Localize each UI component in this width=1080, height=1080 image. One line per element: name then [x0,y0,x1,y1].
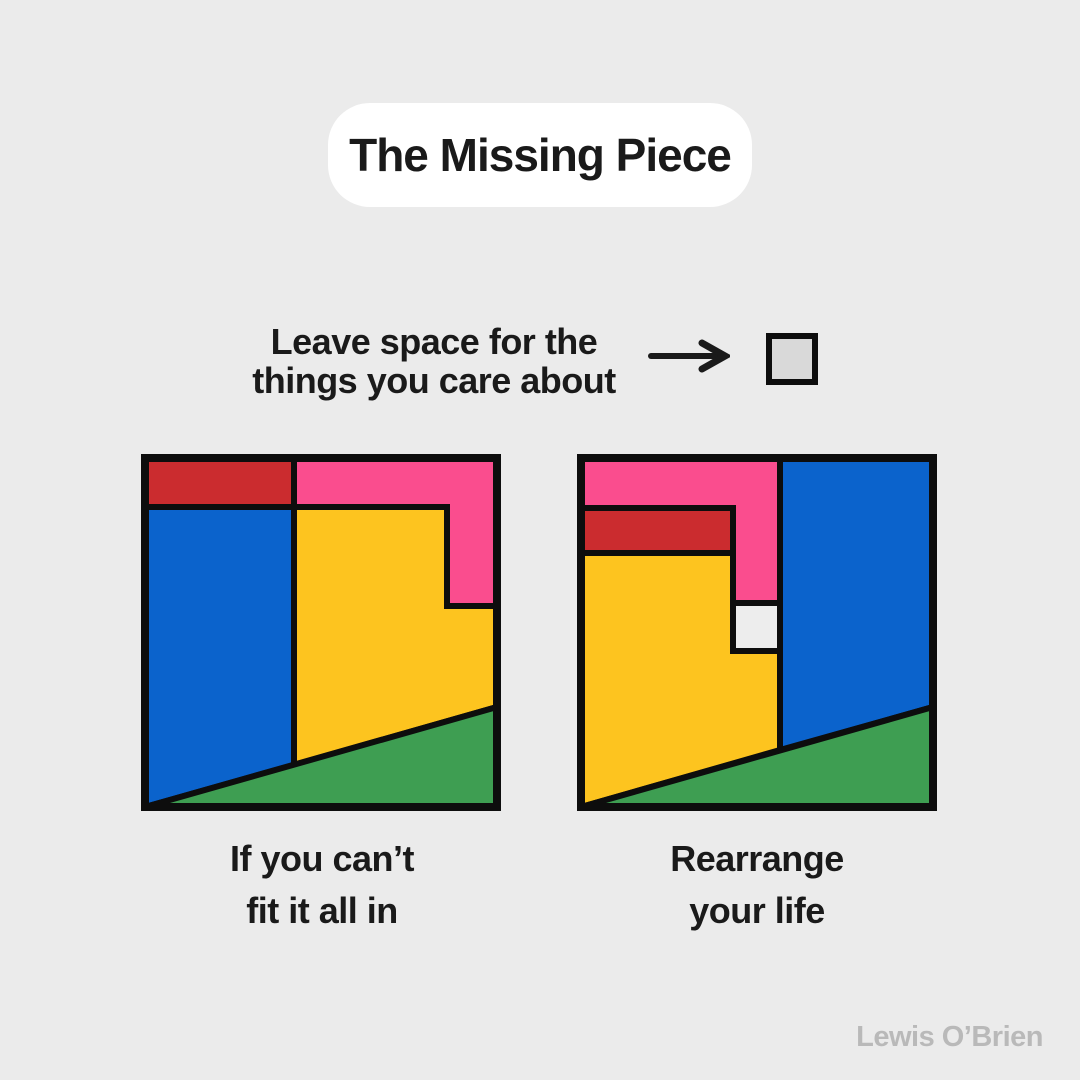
instruction-text: Leave space for the things you care abou… [234,322,634,400]
title-pill: The Missing Piece [328,103,752,207]
poster: The Missing Piece Leave space for the th… [0,0,1080,1080]
caption-right-line-2: your life [581,885,933,937]
right-red-block [581,508,733,553]
artist-signature: Lewis O’Brien [856,1021,1043,1054]
right-blue-block [780,458,933,750]
caption-right-line-1: Rearrange [581,833,933,885]
instruction-line-2: things you care about [234,361,634,400]
caption-left-line-2: fit it all in [146,885,498,937]
caption-right: Rearrange your life [581,833,933,937]
composition-cant-fit [141,454,501,811]
left-blue-block [145,507,294,807]
instruction-line-1: Leave space for the [234,322,634,361]
right-arrow-icon [648,339,730,373]
composition-rearranged [577,454,937,811]
missing-piece-slot [733,603,780,651]
caption-left: If you can’t fit it all in [146,833,498,937]
left-red-block [145,458,294,507]
caption-left-line-1: If you can’t [146,833,498,885]
page-title: The Missing Piece [349,128,731,182]
missing-piece-swatch [766,333,818,385]
